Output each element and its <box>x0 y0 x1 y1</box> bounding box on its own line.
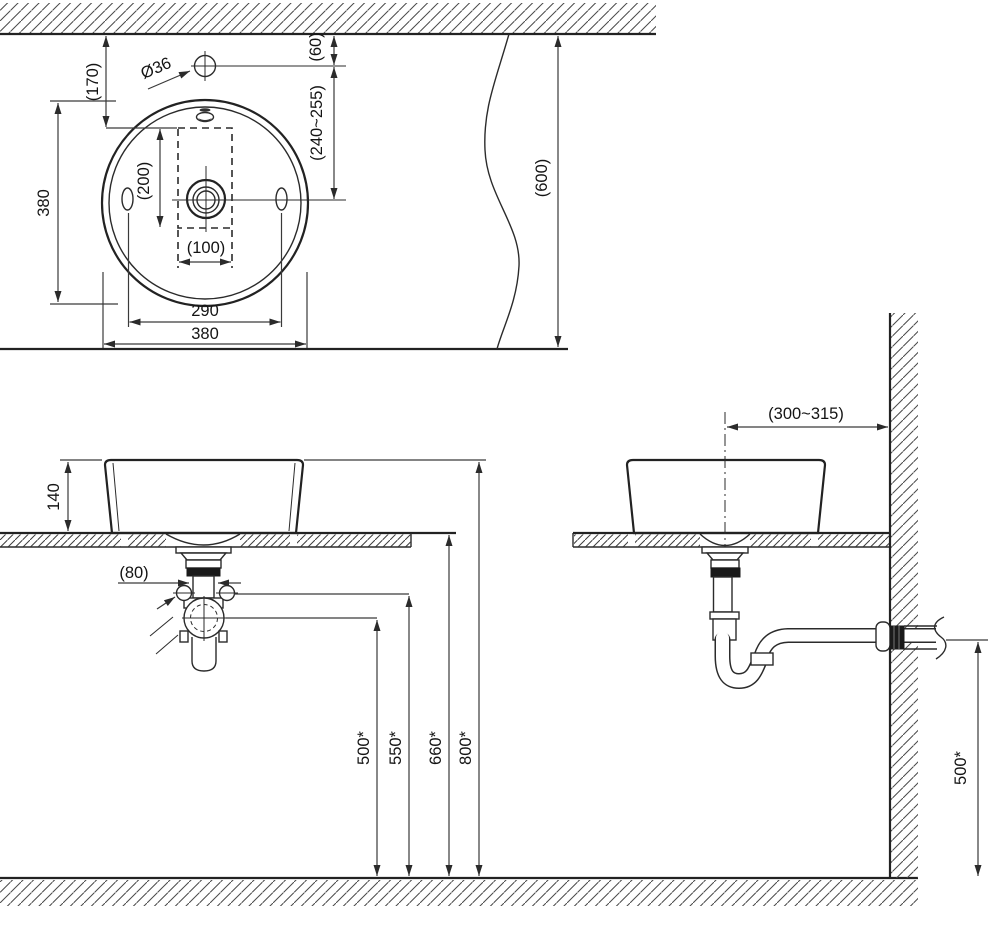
dim-wall-distance: (300~315) <box>768 405 844 423</box>
brand-logo <box>197 108 214 121</box>
trap-union-nut <box>751 653 773 665</box>
basin-profile <box>105 460 303 533</box>
dim-drain-diameter: (80) <box>119 564 148 582</box>
dim-outlet-height: 500* <box>952 750 970 785</box>
dim-basin-diameter-side: 380 <box>35 189 53 217</box>
pipe-break-symbol <box>935 617 946 659</box>
dim-faucet-hole-diameter: Ø36 <box>138 54 174 83</box>
dim-faucet-to-drain: (240~255) <box>308 85 326 161</box>
dim-cutout-width: (100) <box>187 239 226 257</box>
plan-dimensions: (170) 380 (60) (240~255) (200) (100) 290… <box>35 32 558 348</box>
bowl-bottom-curve <box>166 534 240 545</box>
dim-counter-depth: (600) <box>533 159 551 198</box>
dim-basin-diameter-bottom: 380 <box>191 325 219 343</box>
dim-height-550: 550* <box>387 730 405 765</box>
dim-faucet-to-wall: (60) <box>307 32 325 61</box>
dim-cutout-length: (200) <box>135 162 153 201</box>
dim-wall-offset: (170) <box>84 63 102 102</box>
floor <box>0 878 918 906</box>
wall-escutcheon <box>876 622 890 651</box>
top-wall <box>0 3 656 34</box>
dim-height-800: 800* <box>457 730 475 765</box>
dim-height-500: 500* <box>355 730 373 765</box>
counter-break-line <box>485 34 519 349</box>
installation-drawing: (170) 380 (60) (240~255) (200) (100) 290… <box>0 0 1000 926</box>
dim-basin-height: 140 <box>45 483 63 511</box>
right-wall <box>890 313 918 878</box>
dim-height-660: 660* <box>427 730 445 765</box>
dim-hole-spacing: 290 <box>191 302 219 320</box>
wall-fitting <box>890 626 904 649</box>
basin-inner-rim <box>109 107 301 299</box>
drawing-canvas: (170) 380 (60) (240~255) (200) (100) 290… <box>0 0 1000 926</box>
left-slot <box>122 188 133 210</box>
basin-profile-side <box>627 460 825 533</box>
bottle-trap <box>150 547 238 671</box>
right-slot <box>276 188 287 210</box>
trap-outlet-pipe <box>192 637 216 671</box>
